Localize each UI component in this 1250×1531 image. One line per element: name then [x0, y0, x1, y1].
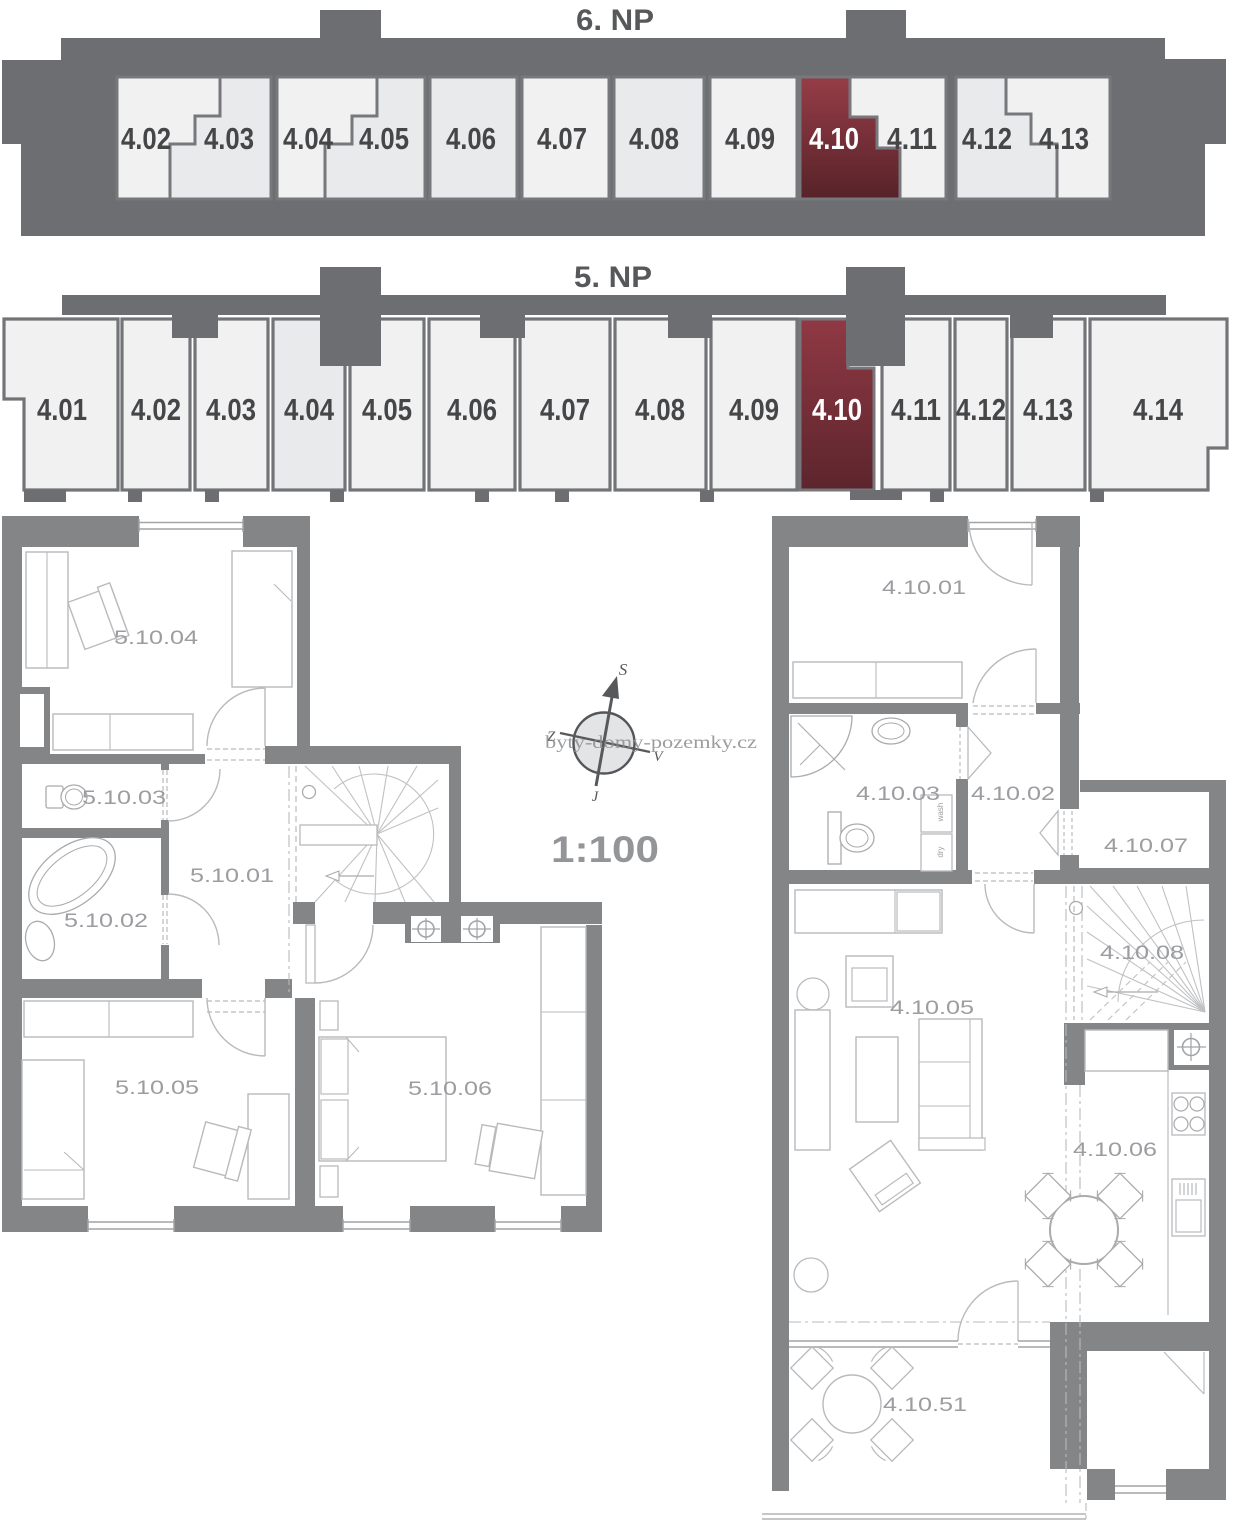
svg-text:4.10: 4.10: [812, 392, 862, 427]
svg-text:4.03: 4.03: [204, 121, 254, 156]
svg-text:5.10.06: 5.10.06: [408, 1079, 492, 1100]
svg-text:4.07: 4.07: [540, 392, 590, 427]
svg-text:4.01: 4.01: [37, 392, 87, 427]
svg-text:5.10.01: 5.10.01: [190, 866, 274, 887]
svg-text:4.12: 4.12: [962, 121, 1012, 156]
svg-text:4.10.01: 4.10.01: [882, 578, 966, 599]
svg-text:4.05: 4.05: [362, 392, 412, 427]
svg-text:4.11: 4.11: [887, 121, 937, 156]
svg-text:4.12: 4.12: [956, 392, 1006, 427]
svg-text:4.10.05: 4.10.05: [890, 998, 974, 1019]
svg-text:dry: dry: [936, 846, 945, 857]
svg-text:4.10.02: 4.10.02: [971, 784, 1055, 805]
svg-text:S: S: [619, 660, 628, 679]
svg-text:5.10.05: 5.10.05: [115, 1078, 199, 1099]
svg-text:1:100: 1:100: [551, 829, 659, 870]
svg-text:4.05: 4.05: [359, 121, 409, 156]
svg-text:4.13: 4.13: [1039, 121, 1089, 156]
svg-text:5.10.02: 5.10.02: [64, 911, 148, 932]
svg-text:4.10.51: 4.10.51: [883, 1395, 967, 1416]
svg-text:4.10.06: 4.10.06: [1073, 1140, 1157, 1161]
svg-text:4.09: 4.09: [729, 392, 779, 427]
svg-text:4.03: 4.03: [206, 392, 256, 427]
svg-text:4.02: 4.02: [131, 392, 181, 427]
svg-text:4.07: 4.07: [537, 121, 587, 156]
svg-text:4.10.08: 4.10.08: [1100, 943, 1184, 964]
svg-text:4.04: 4.04: [284, 392, 335, 427]
svg-text:4.10.07: 4.10.07: [1104, 836, 1188, 857]
svg-text:4.06: 4.06: [447, 392, 497, 427]
svg-text:4.13: 4.13: [1023, 392, 1073, 427]
svg-text:6. NP: 6. NP: [576, 4, 654, 37]
svg-text:4.08: 4.08: [629, 121, 679, 156]
svg-text:4.02: 4.02: [121, 121, 171, 156]
svg-text:4.04: 4.04: [283, 121, 334, 156]
svg-text:4.10.03: 4.10.03: [856, 784, 940, 805]
svg-text:byty-domy-pozemky.cz: byty-domy-pozemky.cz: [545, 732, 757, 752]
svg-text:4.06: 4.06: [446, 121, 496, 156]
svg-text:4.10: 4.10: [809, 121, 859, 156]
svg-text:5.10.04: 5.10.04: [114, 628, 199, 649]
svg-text:4.09: 4.09: [725, 121, 775, 156]
svg-text:4.08: 4.08: [635, 392, 685, 427]
svg-text:wash: wash: [936, 803, 945, 823]
svg-text:4.14: 4.14: [1133, 392, 1184, 427]
svg-text:4.11: 4.11: [891, 392, 941, 427]
svg-text:5. NP: 5. NP: [574, 261, 652, 294]
svg-text:5.10.03: 5.10.03: [82, 788, 166, 809]
